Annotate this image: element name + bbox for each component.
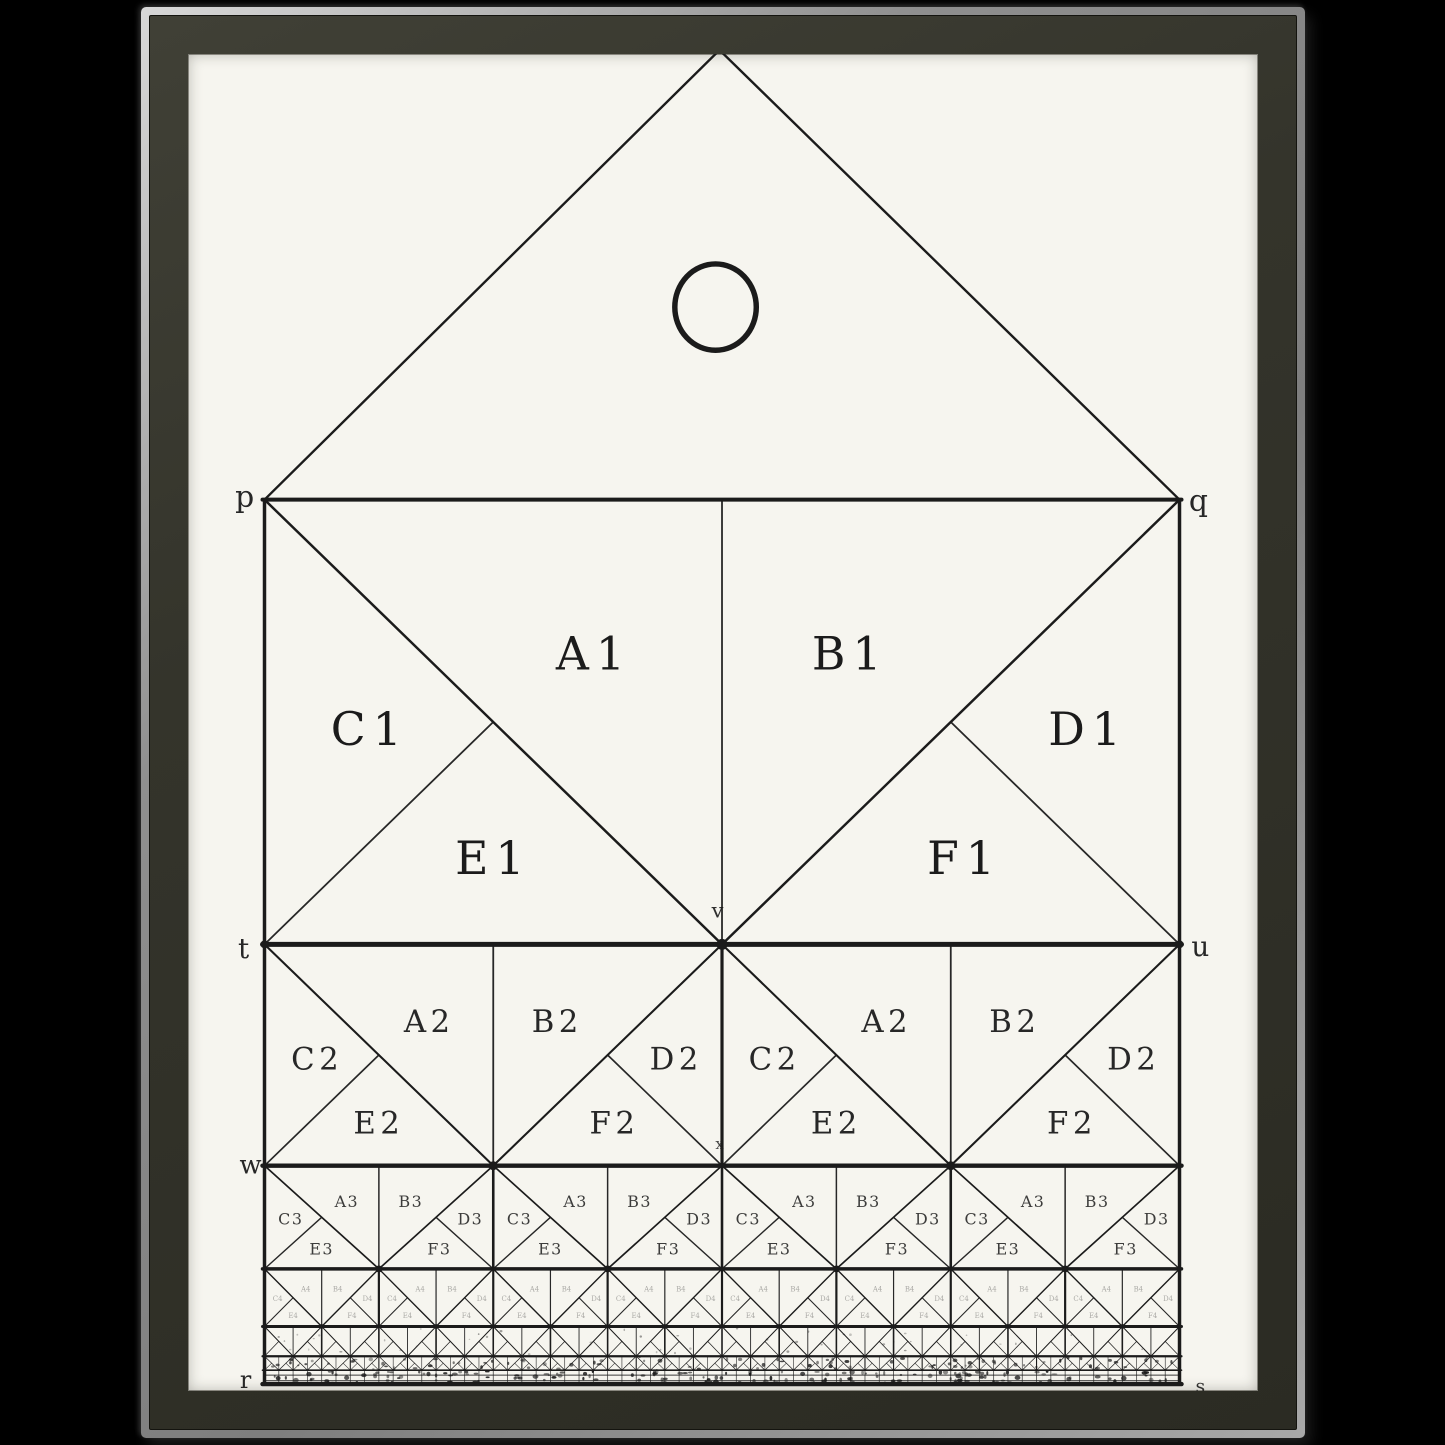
ink-speck <box>284 1340 286 1341</box>
cell-subline-right <box>458 1363 465 1370</box>
ink-smudge <box>327 1362 330 1365</box>
region-label-B3: B3 <box>856 1192 881 1211</box>
cell-subline-left <box>1151 1363 1158 1370</box>
ink-smudge <box>844 1360 849 1363</box>
point-label-u: u <box>1191 930 1209 963</box>
picture-frame-outer-rim: A1B1C1D1E1F1A2B2C2D2E2F2A2B2C2D2E2F2A3B3… <box>141 7 1305 1438</box>
cell-subline-left <box>493 1341 507 1356</box>
ink-smudge <box>344 1375 349 1380</box>
ink-smudge <box>876 1375 879 1378</box>
ink-smudge <box>1089 1364 1092 1368</box>
ink-smudge <box>1155 1360 1159 1363</box>
ink-smudge <box>958 1372 961 1375</box>
ink-smudge <box>1007 1381 1012 1383</box>
ink-smudge <box>890 1360 894 1364</box>
cell-subline-left <box>550 1341 564 1356</box>
ink-smudge <box>891 1380 896 1383</box>
ink-smudge <box>756 1367 759 1370</box>
ink-smudge <box>435 1379 438 1381</box>
ink-smudge <box>306 1372 311 1377</box>
cell-subline-right <box>743 1363 750 1370</box>
point-label-r: r <box>240 1366 252 1391</box>
point-label-x: x <box>715 1135 724 1153</box>
ink-smudge <box>834 1367 837 1370</box>
ink-smudge <box>965 1365 967 1367</box>
ink-smudge <box>770 1376 773 1381</box>
ink-smudge <box>813 1381 815 1384</box>
ink-smudge <box>800 1372 805 1376</box>
ink-smudge <box>423 1373 426 1375</box>
ink-smudge <box>1144 1358 1147 1362</box>
ink-smudge <box>1001 1380 1005 1382</box>
ink-smudge <box>913 1374 917 1376</box>
region-label-E1: E1 <box>455 832 531 885</box>
cell-subline-right <box>515 1363 522 1370</box>
ink-speck <box>904 1350 907 1352</box>
region-label-E4: E4 <box>288 1312 298 1320</box>
cell-subline-left <box>779 1363 786 1370</box>
ink-smudge <box>631 1373 634 1377</box>
ink-smudge <box>749 1373 752 1376</box>
cell-subline-left <box>894 1341 908 1356</box>
ink-smudge <box>1039 1381 1042 1383</box>
ink-smudge <box>418 1371 420 1374</box>
region-label-D4: D4 <box>1163 1295 1174 1303</box>
ink-speck <box>766 1338 769 1340</box>
ink-smudge <box>1034 1371 1039 1374</box>
region-label-A2: A2 <box>860 1004 912 1040</box>
ink-smudge <box>599 1359 603 1362</box>
ink-smudge <box>842 1372 847 1375</box>
ink-smudge <box>637 1379 641 1382</box>
ink-smudge <box>458 1361 460 1364</box>
cell-subline-right <box>1001 1363 1008 1370</box>
ink-smudge <box>982 1359 985 1363</box>
ink-smudge <box>688 1372 692 1374</box>
cell-subline-right <box>915 1363 922 1370</box>
ink-smudge <box>1059 1359 1061 1363</box>
region-label-B1: B1 <box>812 628 889 681</box>
region-label-A4: A4 <box>414 1285 425 1293</box>
ink-smudge <box>389 1371 394 1373</box>
ink-smudge <box>677 1372 683 1375</box>
region-label-F4: F4 <box>1034 1312 1044 1320</box>
cell-subline-left <box>608 1341 622 1356</box>
ink-smudge <box>900 1374 903 1376</box>
region-label-A3: A3 <box>334 1192 360 1211</box>
ink-smudge <box>826 1359 829 1361</box>
ink-speck <box>736 1328 738 1330</box>
ink-speck <box>910 1341 912 1342</box>
ink-smudge <box>641 1374 646 1376</box>
cell-subline-left <box>350 1363 357 1370</box>
ink-smudge <box>875 1372 878 1374</box>
ink-speck <box>676 1335 679 1336</box>
ink-smudge <box>330 1382 335 1384</box>
ink-speck <box>289 1349 291 1351</box>
ink-smudge <box>980 1372 984 1375</box>
region-label-E3: E3 <box>996 1240 1021 1259</box>
ink-smudge <box>1159 1380 1162 1384</box>
cell-subline-left <box>951 1341 965 1356</box>
scene: A1B1C1D1E1F1A2B2C2D2E2F2A2B2C2D2E2F2A3B3… <box>0 0 1445 1445</box>
cell-subline-left <box>493 1363 500 1370</box>
ink-smudge <box>443 1372 447 1374</box>
ink-smudge <box>1014 1363 1018 1367</box>
region-label-C4: C4 <box>730 1295 740 1303</box>
ink-smudge <box>928 1365 933 1367</box>
ink-smudge <box>993 1361 996 1365</box>
ink-speck <box>296 1334 298 1336</box>
ink-speck <box>1015 1343 1017 1346</box>
ink-smudge <box>1035 1366 1038 1368</box>
ink-speck <box>624 1329 626 1331</box>
cell-subline-right <box>365 1341 379 1356</box>
cell-subline-right <box>593 1341 607 1356</box>
cell-subline-right <box>343 1363 350 1370</box>
ink-smudge <box>960 1376 963 1379</box>
ink-smudge <box>861 1371 864 1375</box>
ink-speck <box>808 1330 810 1332</box>
region-label-A4: A4 <box>986 1285 997 1293</box>
region-label-E4: E4 <box>860 1312 870 1320</box>
ink-smudge <box>707 1381 712 1384</box>
cell-subline-left <box>922 1363 929 1370</box>
region-label-A3: A3 <box>1020 1192 1046 1211</box>
cell-subline-right <box>658 1363 665 1370</box>
ink-smudge <box>702 1376 704 1378</box>
ink-smudge <box>752 1379 755 1383</box>
region-label-F4: F4 <box>347 1312 357 1320</box>
region-label-D4: D4 <box>934 1295 945 1303</box>
ink-smudge <box>582 1377 584 1381</box>
region-label-D4: D4 <box>591 1295 602 1303</box>
ink-speck <box>318 1334 320 1336</box>
ink-smudge <box>962 1371 966 1374</box>
region-label-F4: F4 <box>1148 1312 1158 1320</box>
ink-smudge <box>720 1376 724 1380</box>
cell-subline-right <box>765 1341 779 1356</box>
region-label-B4: B4 <box>562 1285 572 1293</box>
ink-smudge <box>1043 1361 1046 1363</box>
region-label-B4: B4 <box>905 1285 915 1293</box>
cell-subline-right <box>715 1363 722 1370</box>
region-label-B4: B4 <box>790 1285 800 1293</box>
ink-smudge <box>849 1376 852 1381</box>
ink-smudge <box>556 1368 561 1371</box>
ink-smudge <box>381 1362 385 1366</box>
cell-subline-right <box>1051 1341 1065 1356</box>
region-label-F3: F3 <box>656 1240 680 1259</box>
ink-smudge <box>733 1364 737 1367</box>
region-label-E3: E3 <box>767 1240 792 1259</box>
ink-smudge <box>372 1368 375 1370</box>
region-label-A3: A3 <box>791 1192 817 1211</box>
ink-smudge <box>995 1381 999 1385</box>
point-label-q: q <box>1189 484 1208 519</box>
ink-smudge <box>1003 1372 1005 1376</box>
ink-smudge <box>426 1372 430 1377</box>
ink-smudge <box>1047 1379 1052 1383</box>
ink-speck <box>849 1333 852 1336</box>
ink-smudge <box>639 1356 641 1358</box>
junction-dot-u <box>1176 940 1184 948</box>
ink-smudge <box>583 1372 587 1376</box>
ink-smudge <box>1067 1355 1070 1359</box>
ink-smudge <box>1015 1376 1021 1380</box>
region-label-C3: C3 <box>964 1210 989 1229</box>
ink-smudge <box>361 1373 366 1377</box>
region-label-A4: A4 <box>300 1285 311 1293</box>
ink-smudge <box>593 1361 595 1365</box>
ink-smudge <box>403 1358 406 1360</box>
ink-speck <box>589 1344 591 1345</box>
region-label-F2: F2 <box>1047 1106 1097 1142</box>
ink-smudge <box>486 1376 490 1378</box>
region-label-E4: E4 <box>1089 1312 1099 1320</box>
region-label-C4: C4 <box>1073 1295 1083 1303</box>
region-label-C4: C4 <box>387 1295 397 1303</box>
region-label-E4: E4 <box>975 1312 985 1320</box>
ink-smudge <box>953 1381 958 1386</box>
ink-smudge <box>397 1377 400 1379</box>
region-label-D2: D2 <box>1107 1041 1160 1077</box>
ink-speck <box>469 1339 471 1340</box>
cell-subline-right <box>486 1363 493 1370</box>
region-label-F4: F4 <box>462 1312 472 1320</box>
region-label-C2: C2 <box>749 1041 801 1077</box>
ink-smudge <box>643 1360 645 1363</box>
cell-subline-right <box>536 1341 550 1356</box>
ink-smudge <box>979 1376 984 1379</box>
ink-speck <box>660 1349 662 1351</box>
ink-smudge <box>725 1372 727 1375</box>
region-label-F3: F3 <box>885 1240 909 1259</box>
ink-smudge <box>328 1370 332 1373</box>
region-label-B4: B4 <box>1134 1285 1144 1293</box>
ink-smudge <box>713 1380 719 1384</box>
ink-smudge <box>311 1360 314 1363</box>
ink-smudge <box>689 1376 692 1380</box>
point-label-t: t <box>238 932 249 965</box>
ink-smudge <box>1095 1367 1100 1370</box>
ink-smudge <box>387 1375 390 1379</box>
ink-smudge <box>821 1379 827 1382</box>
ink-smudge <box>816 1361 819 1365</box>
ink-smudge <box>386 1379 390 1381</box>
ink-smudge <box>597 1363 602 1365</box>
ink-smudge <box>1108 1359 1112 1362</box>
region-label-E2: E2 <box>353 1106 404 1142</box>
ink-speck <box>843 1334 846 1336</box>
ink-speck <box>893 1341 895 1342</box>
ink-smudge <box>472 1380 478 1384</box>
ink-smudge <box>986 1371 988 1375</box>
ink-smudge <box>1006 1370 1009 1374</box>
cell-subline-left <box>264 1341 278 1356</box>
cell-subline-left <box>436 1363 443 1370</box>
ink-speck <box>278 1336 280 1338</box>
ink-speck <box>674 1352 676 1355</box>
region-label-D2: D2 <box>650 1041 703 1077</box>
region-label-A4: A4 <box>757 1285 768 1293</box>
cell-subline-left <box>1122 1341 1136 1356</box>
ink-smudge <box>453 1361 455 1364</box>
ink-smudge <box>331 1370 333 1375</box>
ink-smudge <box>968 1361 973 1365</box>
cell-subline-left <box>379 1341 393 1356</box>
region-label-A4: A4 <box>643 1285 654 1293</box>
cell-subline-right <box>936 1341 950 1356</box>
region-label-C2: C2 <box>291 1041 343 1077</box>
ink-smudge <box>1108 1377 1112 1380</box>
ink-smudge <box>458 1370 462 1373</box>
ink-smudge <box>775 1381 779 1383</box>
ink-smudge <box>543 1362 547 1366</box>
ink-smudge <box>448 1374 453 1376</box>
ink-smudge <box>697 1368 701 1371</box>
ink-speck <box>1071 1334 1073 1336</box>
cell-subline-left <box>436 1341 450 1356</box>
ink-smudge <box>1114 1361 1118 1364</box>
region-label-F3: F3 <box>427 1240 451 1259</box>
region-label-A4: A4 <box>872 1285 883 1293</box>
ink-smudge <box>785 1378 788 1383</box>
ink-speck <box>590 1342 593 1344</box>
ink-smudge <box>289 1361 292 1364</box>
ink-smudge <box>933 1364 936 1366</box>
cell-subline-right <box>801 1363 808 1370</box>
ink-speck <box>1141 1348 1143 1350</box>
cell-subline-right <box>1165 1341 1179 1356</box>
region-label-A4: A4 <box>529 1285 540 1293</box>
ink-smudge <box>1046 1370 1049 1372</box>
ink-smudge <box>884 1382 886 1384</box>
ink-smudge <box>276 1376 281 1380</box>
ink-smudge <box>373 1374 377 1378</box>
ink-smudge <box>560 1371 565 1373</box>
ink-smudge <box>474 1373 479 1375</box>
region-label-C4: C4 <box>616 1295 626 1303</box>
ink-smudge <box>939 1370 942 1375</box>
ink-smudge <box>814 1371 819 1373</box>
ink-speck <box>499 1330 502 1332</box>
ink-smudge <box>514 1374 519 1376</box>
cell-subline-left <box>636 1363 643 1370</box>
ink-smudge <box>413 1367 418 1369</box>
region-label-A1: A1 <box>555 628 632 681</box>
cell-subline-right <box>858 1363 865 1370</box>
region-label-D4: D4 <box>820 1295 831 1303</box>
region-label-D3: D3 <box>1144 1210 1170 1229</box>
ink-smudge <box>848 1365 851 1369</box>
ink-speck <box>399 1349 402 1351</box>
ink-smudge <box>865 1373 867 1375</box>
ink-speck <box>966 1334 968 1336</box>
ink-smudge <box>369 1357 373 1361</box>
ink-smudge <box>310 1379 313 1382</box>
ink-smudge <box>839 1378 842 1383</box>
point-label-w: w <box>240 1150 262 1180</box>
ink-smudge <box>1170 1360 1172 1364</box>
region-label-E4: E4 <box>746 1312 756 1320</box>
cell-subline-right <box>879 1341 893 1356</box>
cell-subline-right <box>1115 1363 1122 1370</box>
ink-smudge <box>517 1376 522 1379</box>
ink-smudge <box>304 1363 307 1365</box>
cell-subline-left <box>722 1363 729 1370</box>
ink-smudge <box>387 1371 390 1373</box>
ink-smudge <box>324 1379 329 1382</box>
ink-smudge <box>1041 1373 1046 1376</box>
region-label-C1: C1 <box>331 703 409 756</box>
roof-left-line <box>264 54 719 500</box>
ink-smudge <box>1145 1375 1148 1377</box>
region-label-A3: A3 <box>562 1192 588 1211</box>
region-label-F3: F3 <box>1114 1240 1138 1259</box>
region-label-D4: D4 <box>362 1295 373 1303</box>
region-label-C4: C4 <box>959 1295 969 1303</box>
point-label-v: v <box>711 899 724 923</box>
region-label-F2: F2 <box>590 1106 640 1142</box>
region-label-B3: B3 <box>1085 1192 1110 1211</box>
region-label-F1: F1 <box>927 832 1002 885</box>
ink-smudge <box>1165 1378 1167 1382</box>
region-label-E4: E4 <box>403 1312 413 1320</box>
ink-speck <box>478 1333 480 1335</box>
ink-speck <box>486 1336 489 1338</box>
cell-subline-right <box>822 1341 836 1356</box>
ink-smudge <box>953 1365 957 1368</box>
ink-smudge <box>447 1381 453 1384</box>
region-label-D4: D4 <box>706 1295 717 1303</box>
cell-subline-left <box>608 1363 615 1370</box>
ink-speck <box>999 1343 1002 1344</box>
cell-subline-right <box>307 1341 321 1356</box>
ink-speck <box>308 1348 310 1350</box>
ink-smudge <box>738 1358 742 1361</box>
ink-smudge <box>274 1375 276 1378</box>
region-label-D1: D1 <box>1048 703 1128 756</box>
ink-smudge <box>491 1360 493 1363</box>
ink-smudge <box>652 1372 657 1374</box>
ink-speck <box>786 1350 789 1352</box>
ink-smudge <box>507 1362 509 1365</box>
region-label-E4: E4 <box>517 1312 527 1320</box>
ink-speck <box>904 1333 907 1335</box>
ink-smudge <box>953 1359 958 1363</box>
cell-subline-left <box>836 1341 850 1356</box>
region-label-D4: D4 <box>1049 1295 1060 1303</box>
ink-smudge <box>292 1356 296 1358</box>
ink-smudge <box>688 1366 692 1368</box>
ink-speck <box>640 1335 643 1337</box>
ink-smudge <box>897 1379 903 1382</box>
cell-subline-right <box>972 1363 979 1370</box>
ink-smudge <box>1066 1377 1071 1381</box>
ink-smudge <box>350 1360 355 1362</box>
ink-smudge <box>527 1366 530 1369</box>
ink-smudge <box>1080 1357 1082 1360</box>
cell-subline-left <box>665 1363 672 1370</box>
ink-smudge <box>1023 1364 1025 1367</box>
ink-speck <box>795 1341 798 1343</box>
region-label-B3: B3 <box>399 1192 424 1211</box>
cell-subline-right <box>315 1363 322 1370</box>
cell-subline-right <box>1108 1341 1122 1356</box>
region-label-D3: D3 <box>686 1210 712 1229</box>
ink-smudge <box>569 1363 573 1367</box>
